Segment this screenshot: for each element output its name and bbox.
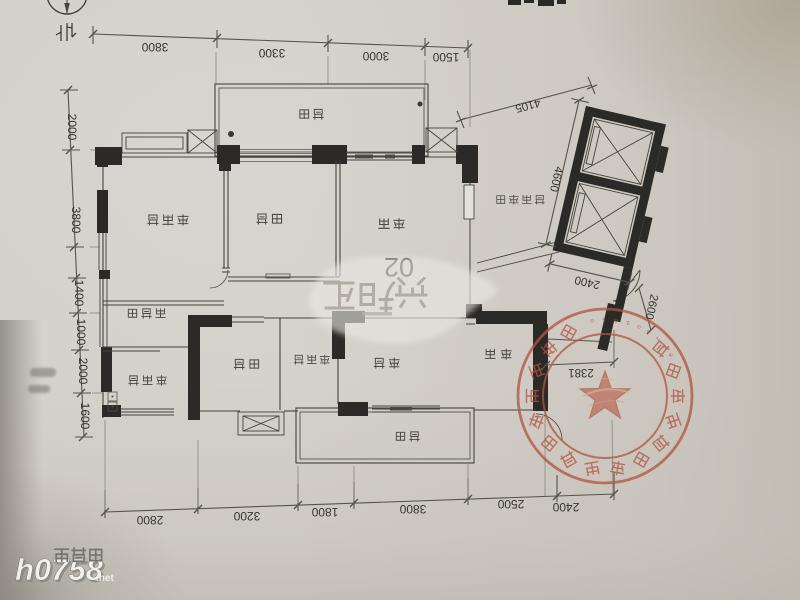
svg-text:1800: 1800 — [311, 505, 338, 519]
svg-text:3300: 3300 — [258, 46, 285, 60]
svg-text:1400: 1400 — [72, 280, 86, 307]
svg-text:2000: 2000 — [76, 358, 90, 385]
svg-text:3200: 3200 — [233, 509, 260, 523]
svg-text:1000: 1000 — [74, 319, 88, 346]
svg-text:1600: 1600 — [78, 403, 92, 430]
svg-text:.net: .net — [96, 573, 114, 584]
svg-text:3800: 3800 — [399, 502, 426, 516]
svg-text:3800: 3800 — [141, 40, 168, 54]
svg-text:2381: 2381 — [568, 366, 594, 378]
svg-text:2400: 2400 — [552, 500, 579, 514]
svg-text:1500: 1500 — [432, 50, 459, 64]
svg-text:2000: 2000 — [65, 114, 79, 141]
svg-text:2500: 2500 — [497, 497, 524, 511]
svg-text:3000: 3000 — [362, 49, 389, 63]
svg-text:3800: 3800 — [69, 207, 83, 234]
svg-text:2800: 2800 — [136, 513, 163, 527]
